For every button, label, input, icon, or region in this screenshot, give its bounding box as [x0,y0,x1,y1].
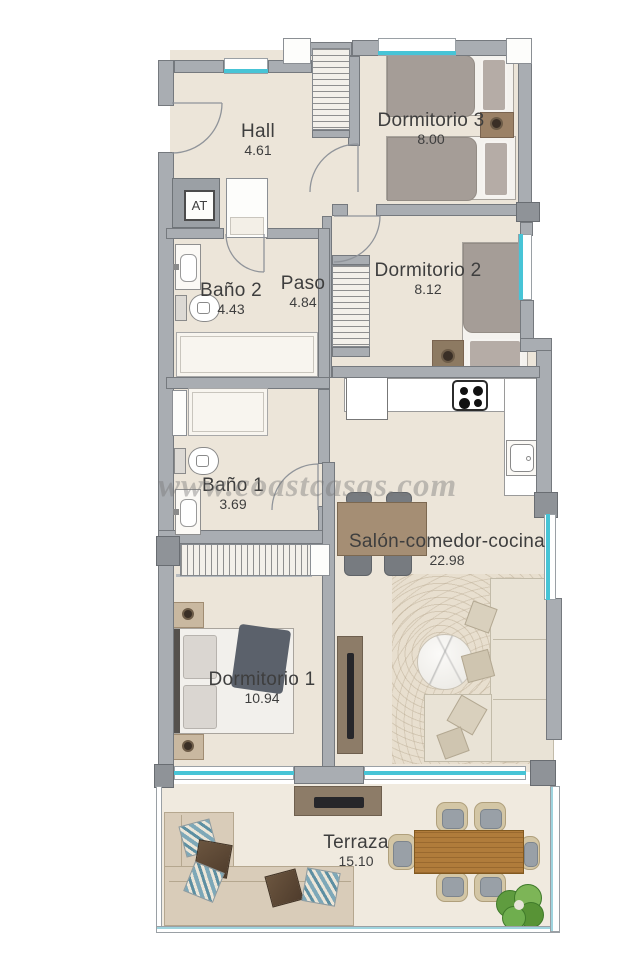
nightstand [172,734,204,760]
wall [520,300,534,342]
room-area: 8.12 [374,281,481,297]
wall [376,204,518,216]
nightstand [172,602,204,628]
plant-flower [514,900,524,910]
outdoor-tv-console [294,786,382,816]
kitchen-sink-icon [506,440,538,476]
at-label: AT [184,190,215,221]
toilet-tank [175,295,187,321]
room-label-salon: Salón-comedor-cocina 22.98 [349,532,545,568]
pillar [516,202,540,222]
window-glass [546,514,550,600]
wall [322,462,335,772]
toilet-seat [196,455,209,467]
lamp-icon [182,608,194,620]
wall [546,598,562,740]
terrace-rail-bottom [156,926,560,933]
fridge [346,376,388,420]
wall [174,60,224,73]
room-area: 4.43 [200,301,262,317]
room-name: Hall [241,122,275,142]
sink-faucet [173,509,179,515]
outdoor-dining-table [414,830,524,874]
floor-plan: AT Hall 4.61 [0,0,642,980]
terrace-rail-glass [157,927,559,929]
sofa-seam [493,639,551,640]
pillar [156,536,180,566]
bed [386,54,514,116]
room-label-paso: Paso 4.84 [281,274,326,310]
wall [158,152,174,772]
room-name: Dormitorio 1 [208,670,315,690]
room-name: Terraza [323,833,388,853]
wall [318,389,330,464]
bathroom-sink-icon [175,244,201,290]
room-area: 8.00 [377,131,484,147]
pillar [530,760,556,786]
outdoor-chair [436,872,468,902]
room-area: 22.98 [349,552,545,568]
bed-pillow [483,141,509,197]
wardrobe [180,544,312,576]
closet [310,544,330,576]
wall [312,130,350,138]
room-label-dormitorio1: Dormitorio 1 10.94 [208,670,315,706]
bed-headboard [173,629,180,733]
outdoor-chair [474,802,506,832]
terrace-rail-left [156,786,162,932]
bed-pillow [481,58,507,112]
window-glass [378,51,456,55]
room-name: Salón-comedor-cocina [349,532,545,552]
shower [188,388,268,436]
lamp-icon [490,117,503,130]
watermark: www.coastcasas.com [158,468,457,505]
bed-duvet [387,55,475,117]
room-area: 4.61 [241,142,275,158]
terrace-rail-right [550,786,560,932]
nightstand [480,112,514,138]
shower [176,332,318,377]
room-area: 15.10 [323,853,388,869]
room-label-hall: Hall 4.61 [241,122,275,158]
room-label-terraza: Terraza 15.10 [323,833,388,869]
lamp-icon [441,349,455,363]
room-area: 4.84 [281,294,326,310]
lamp-icon [182,740,194,752]
stove-icon [452,380,488,411]
wall [158,60,174,106]
wall [518,56,532,204]
outdoor-pillow [301,867,340,906]
outdoor-chair [436,802,468,832]
plant-icon [494,884,544,928]
wall [332,255,370,265]
sink-drain [526,456,531,461]
wardrobe [312,48,350,130]
window-glass [224,69,268,73]
wall [332,366,540,378]
hall-closet [226,178,268,238]
room-name: Dormitorio 2 [374,261,481,281]
kitchen-counter-right [504,378,540,496]
room-name: Baño 2 [200,281,262,301]
wardrobe [332,265,370,347]
terrace-rail-glass [551,787,553,931]
wall [332,347,370,357]
room-label-bano2: Baño 2 4.43 [200,281,262,317]
tv-board [337,636,363,754]
room-label-dormitorio2: Dormitorio 2 8.12 [374,261,481,297]
bed-pillow [468,339,522,369]
outdoor-chair [388,834,416,870]
window-glass [174,771,294,775]
pillar [154,764,174,788]
sink-basin [180,254,197,282]
wall [352,40,380,56]
window-glass [519,234,523,300]
sink-faucet [173,264,179,270]
sofa-seam [493,699,551,700]
shower-door [172,390,187,436]
closet-shelf [230,217,264,235]
room-name: Paso [281,274,326,294]
tv-icon [314,797,364,808]
sliding-door-glass [364,771,526,775]
sofa [490,578,554,762]
wall [332,204,348,216]
at-unit: AT [172,178,220,228]
wall-block [506,38,532,64]
room-area: 10.94 [208,690,315,706]
room-label-dormitorio3: Dormitorio 3 8.00 [377,111,484,147]
wall [166,228,224,239]
tv-icon [347,653,354,739]
wall-block [283,38,311,64]
room-name: Dormitorio 3 [377,111,484,131]
wall [294,766,364,784]
